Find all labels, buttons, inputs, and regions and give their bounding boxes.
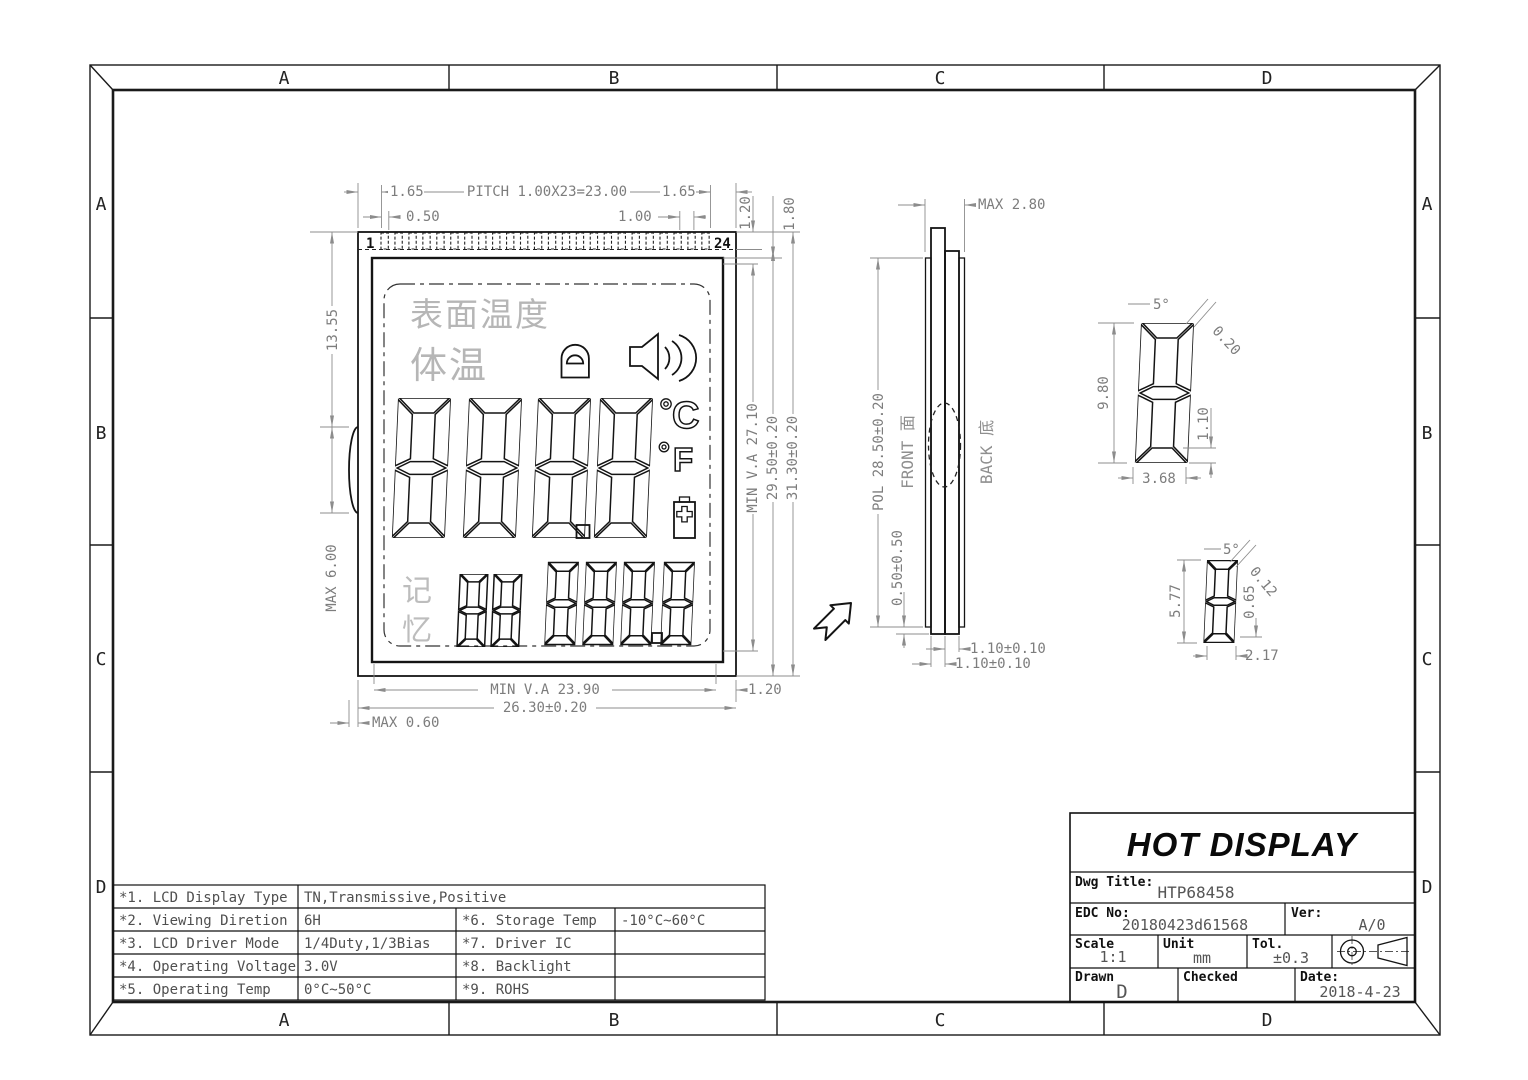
pin-strip: [381, 233, 709, 249]
dim-max-thickness: MAX 2.80: [978, 197, 1045, 213]
zone-left-a: A: [96, 194, 107, 215]
spec-cell: 3.0V: [304, 959, 338, 975]
spec-row-2: *2. Viewing Diretion 6H *6. Storage Temp…: [119, 913, 705, 929]
zone-top-c: C: [935, 68, 946, 89]
pin: [451, 233, 458, 249]
drawing-sheet: A B C D A B C D A B C D A B C D 1 24 表面温…: [0, 0, 1528, 1080]
dim-total-height: 31.30±0.20: [785, 416, 801, 500]
dim-pol-inset: 0.50±0.50: [890, 530, 906, 606]
unit-value: mm: [1193, 949, 1211, 967]
view-direction-arrow-icon: [814, 603, 851, 640]
dim-large-segment: 1.10: [1196, 407, 1212, 441]
zone-top-d: D: [1262, 68, 1273, 89]
pin: [534, 233, 541, 249]
zone-bottom-b: B: [609, 1010, 620, 1031]
pin: [548, 233, 555, 249]
dim-large-width: 3.68: [1142, 471, 1176, 487]
speaker-icon: [630, 334, 696, 381]
digit-small-3: [544, 562, 579, 644]
dim-small-height: 5.77: [1168, 584, 1184, 618]
pin: [521, 233, 528, 249]
pin-number-first: 1: [366, 236, 374, 252]
digit-large-2: [463, 398, 522, 538]
dim-back-glass: 1.10±0.10: [970, 641, 1046, 657]
drawn-label: Drawn: [1075, 970, 1114, 985]
dwg-title-label: Dwg Title:: [1075, 875, 1153, 890]
dim-large-gap: 0.20: [1209, 323, 1244, 359]
edc-no-value: 20180423d61568: [1122, 916, 1248, 934]
dim-margin-right: 1.65: [662, 184, 696, 200]
pin: [674, 233, 681, 249]
pin: [660, 233, 667, 249]
projection-symbol-icon: [1337, 936, 1412, 967]
pin: [604, 233, 611, 249]
digit-large-4: [594, 398, 653, 538]
digit-large-1: [392, 398, 451, 538]
digit-small-6: [660, 562, 695, 644]
dim-glass-offset: 13.55: [325, 309, 341, 351]
unit-label: Unit: [1163, 937, 1194, 952]
spec-cell: 0°C~50°C: [304, 982, 371, 998]
spec-cell: *6. Storage Temp: [462, 913, 597, 929]
pin: [423, 233, 430, 249]
pin: [632, 233, 639, 249]
spec-cell: *7. Driver IC: [462, 936, 572, 952]
pin: [493, 233, 500, 249]
lock-icon: [562, 345, 589, 378]
zone-left-b: B: [96, 423, 107, 444]
dim-margin-left: 1.65: [390, 184, 424, 200]
spec-cell: *8. Backlight: [462, 959, 572, 975]
legend-surface-temp: 表面温度: [410, 295, 550, 334]
decimal-point-large: [577, 525, 590, 538]
zone-right-d: D: [1422, 877, 1433, 898]
dim-small-width: 2.17: [1245, 648, 1279, 664]
pin: [618, 233, 625, 249]
checked-label: Checked: [1183, 970, 1238, 985]
dwg-title-value: HTP68458: [1157, 883, 1234, 902]
ver-value: A/0: [1358, 916, 1385, 934]
pin: [409, 233, 416, 249]
pin: [381, 233, 388, 249]
zone-left-d: D: [96, 877, 107, 898]
dim-large-height: 9.80: [1096, 376, 1112, 410]
dim-front-glass: 1.10±0.10: [955, 656, 1031, 672]
pin: [437, 233, 444, 249]
dim-small-angle: 5°: [1223, 542, 1240, 558]
pin: [479, 233, 486, 249]
side-view: FRONT 面 BACK 底 MAX 2.80 POL 28.50±0.20 0…: [869, 197, 1046, 672]
scale-value: 1:1: [1099, 948, 1126, 966]
dim-bump-span: MAX 6.00: [324, 544, 340, 611]
detail-large-digit: 9.80 3.68 1.10 5° 0.20: [1096, 297, 1243, 487]
legend-memory-top: 记: [402, 574, 432, 609]
dim-pin-length: 1.20: [738, 196, 754, 230]
drawn-value: D: [1116, 981, 1127, 1003]
spec-cell: *9. ROHS: [462, 982, 529, 998]
pin: [507, 233, 514, 249]
spec-row-4: *4. Operating Voltage 3.0V *8. Backlight: [119, 959, 572, 975]
dim-va-width: MIN V.A 23.90: [490, 682, 600, 698]
dim-pol-height: POL 28.50±0.20: [871, 393, 887, 511]
spec-cell: *3. LCD Driver Mode: [119, 936, 279, 952]
ver-label: Ver:: [1291, 906, 1322, 921]
digit-small-1: [457, 574, 488, 647]
pin: [590, 233, 597, 249]
dim-bump-max: MAX 0.60: [372, 715, 439, 731]
dim-pin-width: 0.50: [406, 209, 440, 225]
digit-small-4: [582, 562, 617, 644]
dim-total-width: 26.30±0.20: [503, 700, 587, 716]
dim-lcd-height: 29.50±0.20: [765, 416, 781, 500]
side-back-label: BACK 底: [977, 420, 996, 484]
spec-row-3: *3. LCD Driver Mode 1/4Duty,1/3Bias *7. …: [119, 936, 572, 952]
zone-right-c: C: [1422, 649, 1433, 670]
pin: [646, 233, 653, 249]
spec-row-1: *1. LCD Display Type TN,Transmissive,Pos…: [119, 890, 506, 906]
date-value: 2018-4-23: [1319, 983, 1400, 1001]
digit-large-3: [532, 398, 591, 538]
spec-cell: *2. Viewing Diretion: [119, 913, 288, 929]
side-front-label: FRONT 面: [898, 415, 917, 489]
pin: [465, 233, 472, 249]
digit-small-2: [491, 574, 522, 647]
fahrenheit-icon: F: [659, 441, 693, 478]
tol-value: ±0.3: [1273, 949, 1309, 967]
spec-cell: *1. LCD Display Type: [119, 890, 288, 906]
drawing-canvas: A B C D A B C D A B C D A B C D 1 24 表面温…: [0, 0, 1528, 1080]
title-block: HOT DISPLAY Dwg Title: HTP68458 EDC No: …: [1070, 813, 1415, 1003]
spec-row-5: *5. Operating Temp 0°C~50°C *9. ROHS: [119, 982, 529, 998]
dim-small-segment: 0.65: [1242, 585, 1258, 619]
dim-pin-pitch: 1.00: [618, 209, 652, 225]
zone-top-a: A: [279, 68, 290, 89]
spec-cell: -10°C~60°C: [621, 913, 705, 929]
spec-cell: 1/4Duty,1/3Bias: [304, 936, 430, 952]
digit-small-5: [620, 562, 655, 644]
spec-table: *1. LCD Display Type TN,Transmissive,Pos…: [113, 885, 765, 1000]
company-logo-text: HOT DISPLAY: [1127, 826, 1359, 863]
dim-edge-gap: 1.20: [748, 682, 782, 698]
battery-icon: [674, 497, 695, 538]
zone-bottom-d: D: [1262, 1010, 1273, 1031]
front-view: 1 24 表面温度 体温 记 忆 C F: [349, 232, 736, 676]
detail-small-digit: 5.77 2.17 0.65 5° 0.12: [1168, 540, 1280, 664]
glass-bump: [349, 427, 358, 513]
zone-bottom-a: A: [279, 1010, 290, 1031]
spec-cell: TN,Transmissive,Positive: [304, 890, 506, 906]
legend-memory-bottom: 忆: [402, 613, 432, 648]
celsius-letter: C: [672, 395, 699, 437]
fahrenheit-letter: F: [673, 441, 693, 478]
legend-body-temp: 体温: [410, 344, 488, 387]
zone-right-b: B: [1422, 423, 1433, 444]
dim-large-angle: 5°: [1153, 297, 1170, 313]
dim-seal-offset: 1.80: [782, 197, 798, 231]
zone-left-c: C: [96, 649, 107, 670]
zone-bottom-c: C: [935, 1010, 946, 1031]
dim-pitch: PITCH 1.00X23=23.00: [467, 184, 627, 200]
pin: [562, 233, 569, 249]
pin: [702, 233, 709, 249]
pin: [576, 233, 583, 249]
pin-number-last: 24: [714, 236, 731, 252]
celsius-icon: C: [661, 395, 700, 437]
pin: [688, 233, 695, 249]
pin: [395, 233, 402, 249]
spec-cell: *5. Operating Temp: [119, 982, 271, 998]
zone-right-a: A: [1422, 194, 1433, 215]
zone-top-b: B: [609, 68, 620, 89]
spec-cell: 6H: [304, 913, 321, 929]
spec-cell: *4. Operating Voltage: [119, 959, 296, 975]
dim-va-height: MIN V.A 27.10: [745, 403, 761, 513]
